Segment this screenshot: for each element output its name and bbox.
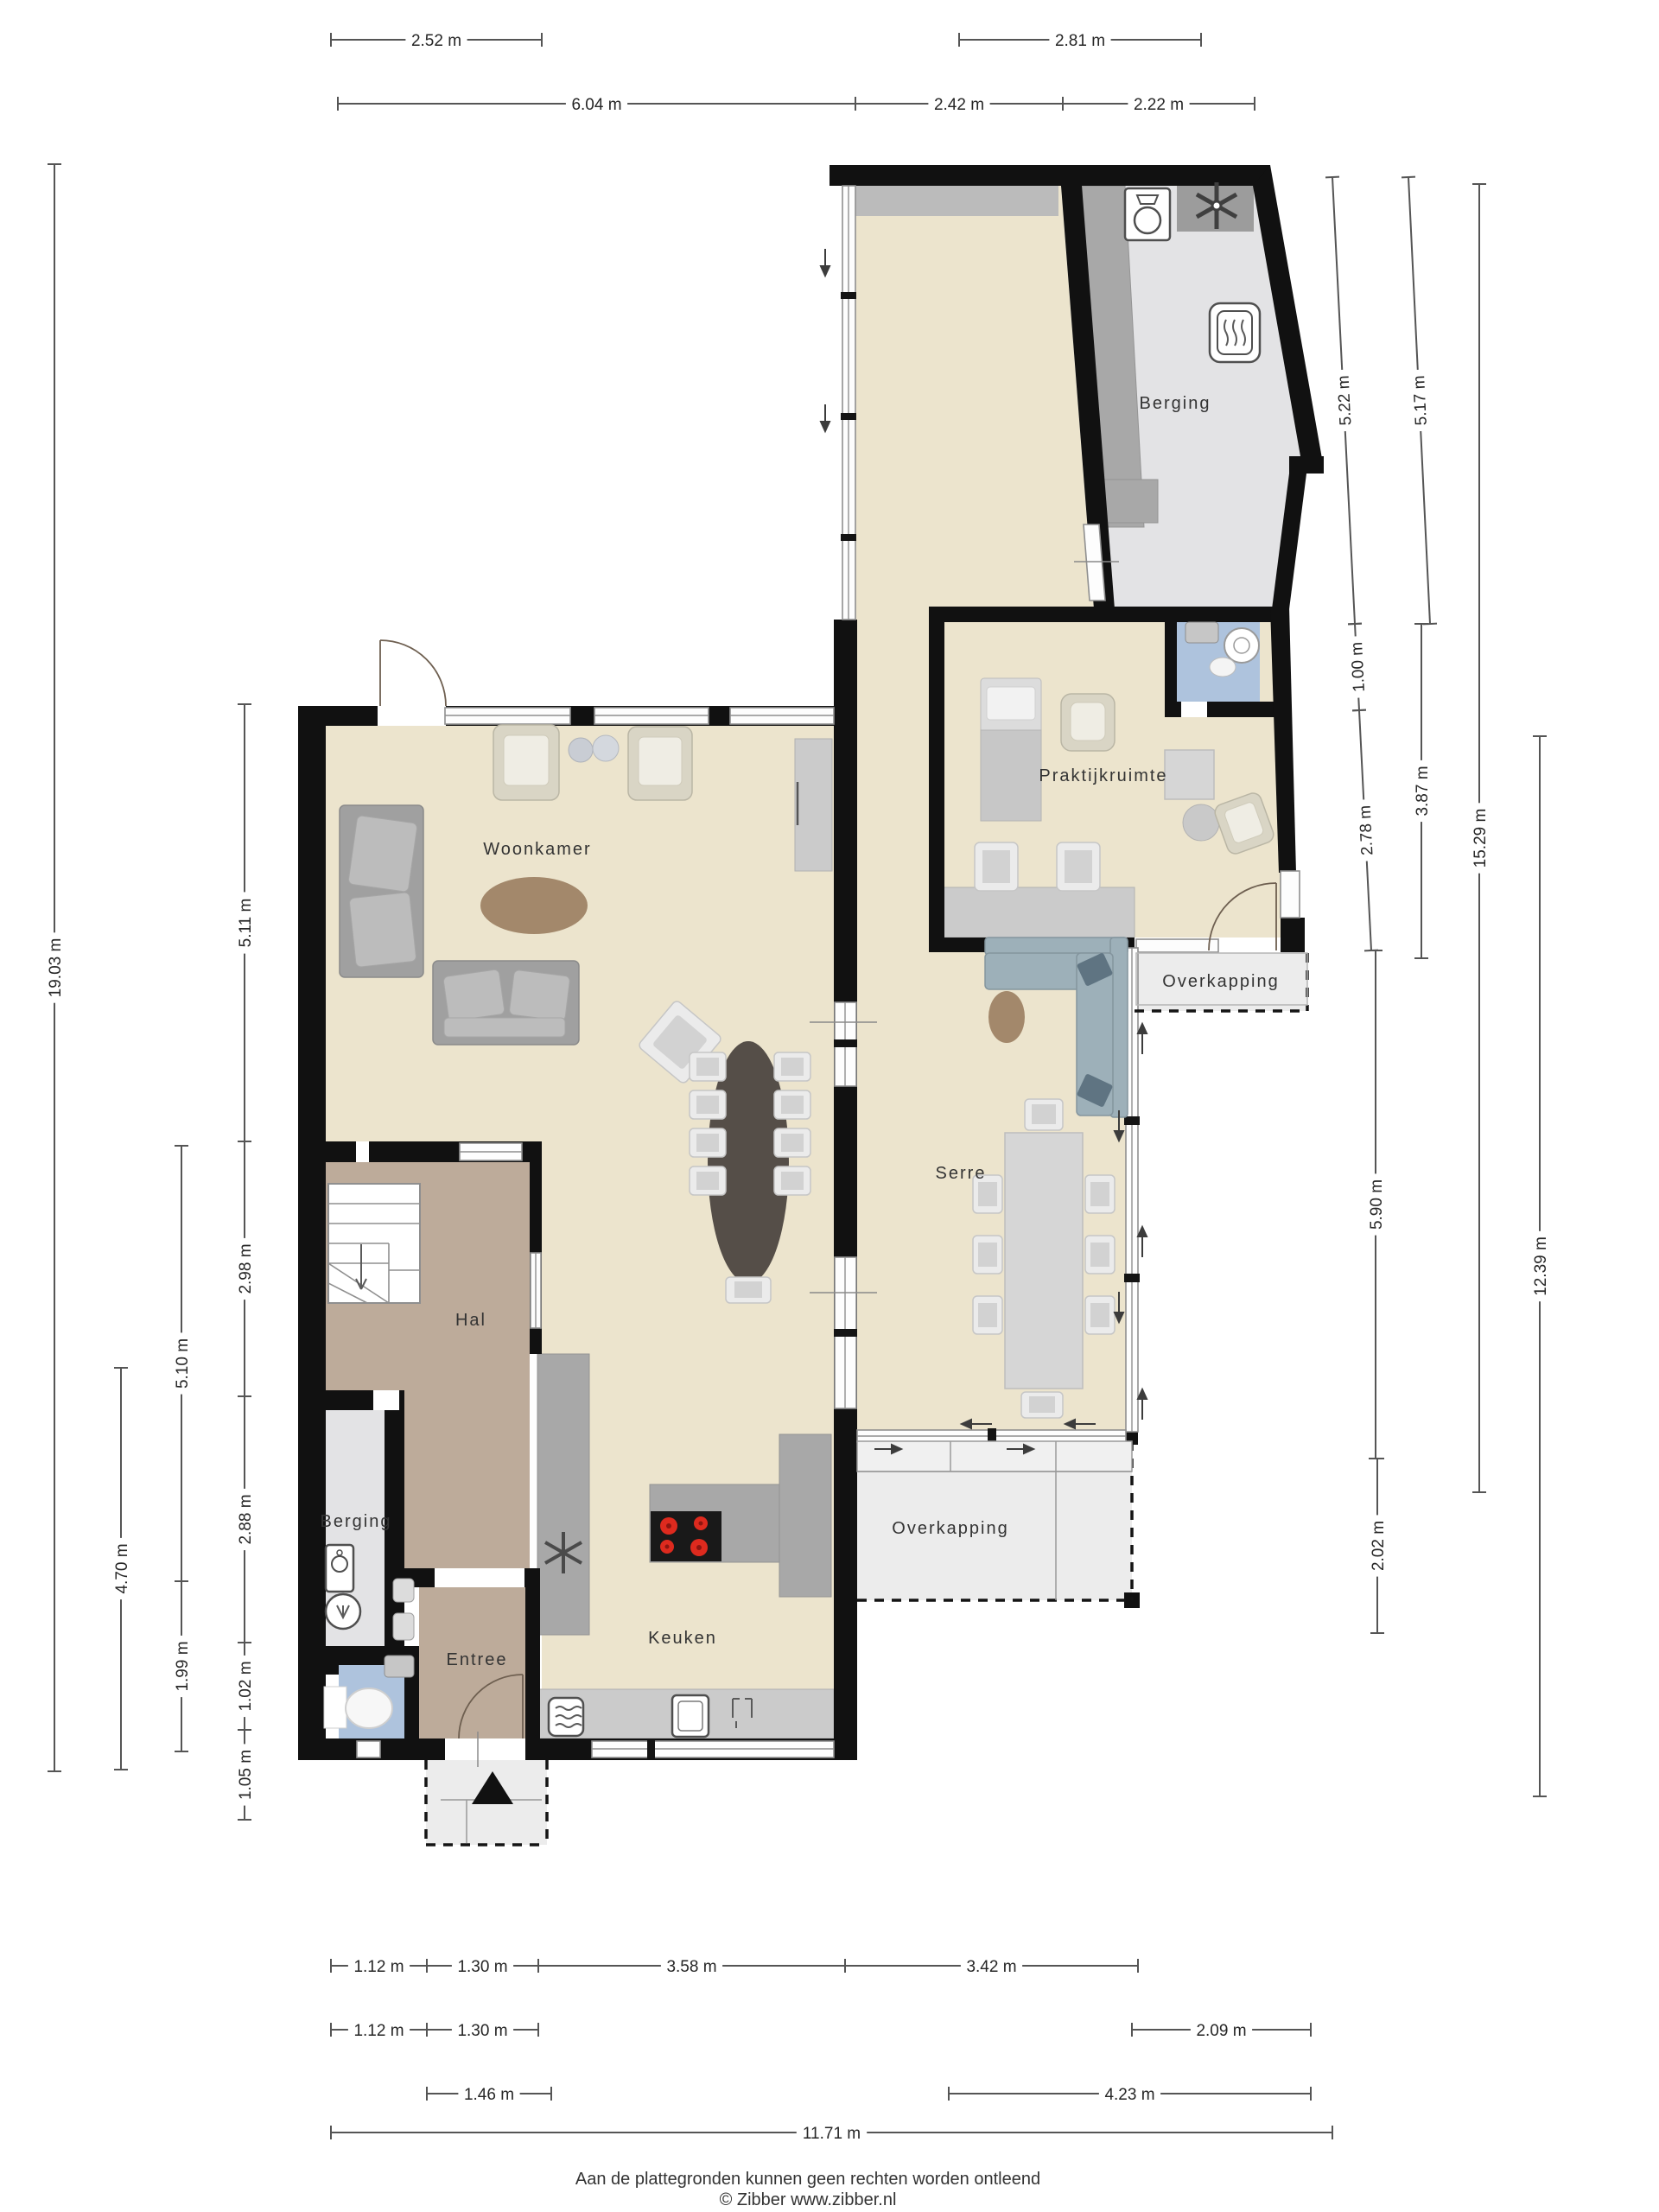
bed	[981, 678, 1041, 821]
dimension: 2.88 m	[234, 1396, 255, 1643]
window-praktijk-right	[1281, 871, 1300, 918]
dimension: 2.22 m	[1063, 93, 1255, 114]
dimension: 1.99 m	[171, 1581, 192, 1751]
corridor-sill	[855, 186, 1058, 216]
fixture-icon	[393, 1613, 414, 1640]
washing-machine-icon	[1125, 188, 1170, 240]
heater-icon	[1210, 303, 1260, 362]
dimension: 2.78 m	[1352, 710, 1378, 951]
sofa	[340, 805, 423, 977]
wall-left	[298, 706, 326, 1760]
dimension-label: 5.11 m	[237, 899, 255, 948]
dimension: 19.03 m	[44, 164, 65, 1771]
sink-icon	[1185, 622, 1218, 643]
floor-plan: Woonkamer Serre Keuken Hal Entree Bergin…	[0, 0, 1659, 2212]
dimension: 3.58 m	[538, 1955, 845, 1976]
dimension: 1.46 m	[427, 2083, 551, 2104]
dimension-label: 15.29 m	[1471, 809, 1490, 868]
cooktop-icon	[651, 1511, 721, 1561]
dimension: 2.09 m	[1132, 2019, 1311, 2040]
side-table	[569, 738, 593, 762]
dimension-label: 3.42 m	[966, 1958, 1016, 1976]
window-praktijk-bottom	[1136, 939, 1218, 952]
dimension-label: 1.46 m	[464, 2086, 514, 2104]
rug	[480, 877, 588, 934]
overkapping-rechts-label: Overkapping	[1162, 972, 1279, 991]
serre-label: Serre	[936, 1164, 987, 1183]
dimension: 6.04 m	[338, 93, 855, 114]
dimension-label: 2.88 m	[237, 1494, 255, 1544]
berging-boven-label: Berging	[1140, 394, 1211, 413]
armchair	[1061, 694, 1115, 751]
footer-copyright: © Zibber www.zibber.nl	[720, 2190, 897, 2209]
square-table	[1165, 750, 1214, 799]
kitchen-island	[537, 1354, 589, 1635]
wall-entree-right	[525, 1587, 540, 1738]
dimension: 1.02 m	[234, 1643, 255, 1730]
entree-label: Entree	[447, 1650, 508, 1669]
dimension-label: 2.98 m	[237, 1243, 255, 1294]
dimension: 1.12 m	[331, 2019, 427, 2040]
dimension: 4.70 m	[111, 1368, 131, 1770]
dimension-label: 1.99 m	[174, 1641, 192, 1691]
dimension-label: 5.22 m	[1335, 375, 1356, 426]
dimension-label: 3.58 m	[666, 1958, 716, 1976]
door-opening-berging	[373, 1390, 399, 1410]
dimension-label: 11.71 m	[803, 2125, 861, 2143]
shower-icon	[1224, 628, 1259, 663]
dimension-label: 1.12 m	[353, 1958, 404, 1976]
dimension: 1.00 m	[1345, 624, 1370, 711]
dimension-label: 6.04 m	[571, 96, 621, 114]
sink-icon	[385, 1656, 414, 1677]
wall-wing-top	[829, 165, 1270, 186]
dimension-label: 1.00 m	[1348, 641, 1369, 692]
dimension: 5.10 m	[171, 1146, 192, 1581]
dimension-label: 2.81 m	[1055, 32, 1105, 50]
dimension: 2.42 m	[855, 93, 1063, 114]
wall-divider	[834, 726, 857, 1738]
dimension-label: 2.42 m	[934, 96, 984, 114]
dimension-label: 2.78 m	[1357, 804, 1377, 855]
sideboard	[795, 739, 832, 871]
toilet-icon	[324, 1687, 392, 1728]
dimension: 3.42 m	[845, 1955, 1138, 1976]
dimension: 5.90 m	[1365, 950, 1386, 1459]
armchair	[493, 725, 559, 800]
wall-praktijk-top	[929, 607, 1277, 622]
dimension-label: 4.70 m	[113, 1543, 131, 1593]
dimension-label: 1.02 m	[237, 1661, 255, 1711]
sofa	[433, 961, 579, 1045]
dimension: 4.23 m	[949, 2083, 1311, 2104]
dimension: 5.17 m	[1402, 177, 1437, 625]
dimension-label: 1.05 m	[237, 1750, 255, 1800]
armchair	[628, 727, 692, 800]
dimension: 1.30 m	[427, 1955, 538, 1976]
overkapping-counter	[857, 1441, 1132, 1471]
hal-label: Hal	[455, 1311, 486, 1330]
wall-corridor-post	[834, 620, 857, 728]
desk-chair	[975, 842, 1018, 891]
door-arc-woonkamer	[380, 640, 446, 706]
window-toilet	[357, 1741, 380, 1758]
dimension: 1.30 m	[427, 2019, 538, 2040]
wall-wing-step	[1289, 456, 1324, 474]
hal-niche	[356, 1141, 369, 1162]
berging-label: Berging	[321, 1512, 392, 1531]
dimension-label: 2.02 m	[1370, 1521, 1388, 1571]
dimension: 2.52 m	[331, 29, 542, 50]
door-opening-woonkamer	[378, 706, 446, 726]
dimension: 5.11 m	[234, 704, 255, 1141]
dimension-label: 19.03 m	[47, 938, 65, 998]
praktijkruimte-label: Praktijkruimte	[1039, 766, 1167, 785]
dimension-label: 5.90 m	[1368, 1179, 1386, 1230]
dimension: 2.98 m	[234, 1141, 255, 1396]
desk-chair	[1057, 842, 1100, 891]
wall-praktijk-left	[929, 607, 944, 952]
dimension: 2.81 m	[959, 29, 1201, 50]
fixture-icon	[393, 1579, 414, 1602]
rug	[988, 991, 1025, 1043]
dimension-label: 2.09 m	[1196, 2022, 1246, 2040]
washing-machine-icon	[326, 1545, 353, 1592]
dimension-label: 12.39 m	[1532, 1236, 1550, 1296]
keuken-label: Keuken	[648, 1629, 717, 1648]
dimension: 3.87 m	[1411, 624, 1432, 958]
dimension-label: 5.10 m	[174, 1338, 192, 1389]
overkapping-onder-label: Overkapping	[892, 1519, 1008, 1538]
footer-disclaimer: Aan de plattegronden kunnen geen rechten…	[575, 2170, 1040, 2189]
dimension-label: 2.52 m	[411, 32, 461, 50]
kitchen-counter-wall	[779, 1434, 831, 1597]
door-opening-entree	[445, 1738, 525, 1760]
dimension-label: 5.17 m	[1410, 375, 1431, 426]
dimension: 2.02 m	[1367, 1459, 1388, 1633]
dimension-label: 1.30 m	[457, 2022, 507, 2040]
dimension-label: 1.30 m	[457, 1958, 507, 1976]
serre-table	[1005, 1133, 1083, 1389]
dimension: 12.39 m	[1529, 736, 1550, 1796]
post-toilet-left	[324, 1655, 339, 1675]
dimension: 5.22 m	[1325, 177, 1362, 625]
praktijk-desk	[935, 887, 1135, 938]
dimension: 11.71 m	[331, 2122, 1332, 2143]
dimension-label: 3.87 m	[1414, 766, 1432, 816]
oven-icon	[549, 1698, 583, 1736]
dimension-label: 4.23 m	[1104, 2086, 1154, 2104]
dimension: 1.12 m	[331, 1955, 427, 1976]
dimension: 15.29 m	[1469, 184, 1490, 1492]
toilet-icon	[1210, 658, 1236, 677]
dimension-label: 1.12 m	[353, 2022, 404, 2040]
dimension: 1.05 m	[234, 1730, 255, 1820]
dimension-label: 2.22 m	[1134, 96, 1184, 114]
berging-boven-workbench	[1103, 480, 1158, 523]
woonkamer-label: Woonkamer	[483, 840, 591, 859]
stairs-icon	[328, 1184, 420, 1303]
side-table	[593, 735, 619, 761]
door-opening-bad	[1181, 702, 1207, 717]
door-opening-entree-hal	[435, 1568, 524, 1587]
wall-praktijk-right-post	[1281, 918, 1305, 952]
round-table	[1183, 804, 1219, 841]
